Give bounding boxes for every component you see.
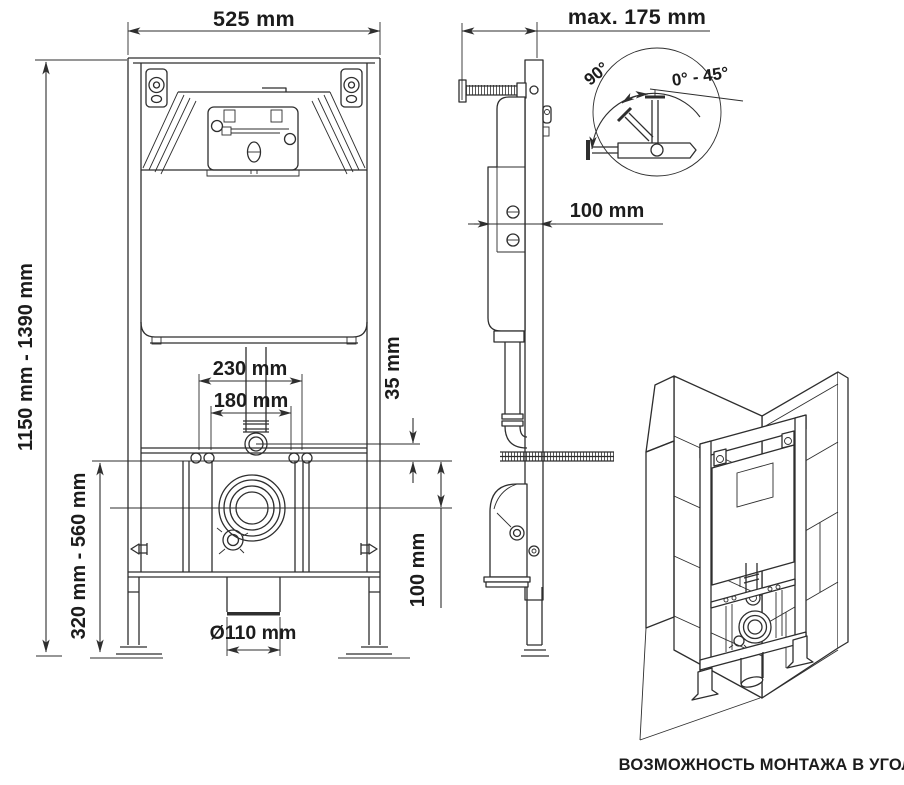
angle-90-label: 90° [581,58,613,89]
dim-drain-offset-label: 100 mm [407,533,429,608]
hanger-bracket-left [146,69,167,107]
dim-rail-320-560: 320 mm - 560 mm [68,463,100,652]
flush-pipe-side [500,342,614,461]
fixing-rail [92,448,452,463]
frame-outline [128,58,380,577]
dim-flush-offset-label: 35 mm [382,336,404,399]
dim-fixing-outer-label: 230 mm [213,358,288,380]
cistern-profile [488,97,525,342]
hose-clamp [217,528,248,554]
tiled-wall-section [646,441,674,628]
angle-range-label: 0° - 45° [671,63,730,90]
hanger-bracket-right [341,69,362,107]
cistern [141,88,367,344]
dim-width-label: 525 mm [213,7,295,31]
dim-width-525: 525 mm [128,7,380,55]
dim-depth-label: 100 mm [570,200,645,222]
corner-mounting-caption: ВОЗМОЖНОСТЬ МОНТАЖА В УГОЛ [619,756,904,774]
technical-drawing-page: 525 mm 1150 mm - 1390 mm 320 mm - 560 mm… [0,0,904,785]
installation-frame-drawing: 525 mm 1150 mm - 1390 mm 320 mm - 560 mm… [0,0,904,785]
dim-max-wall-label: max. 175 mm [568,5,706,29]
dim-fixing-inner-label: 180 mm [214,390,289,412]
dim-height-label: 1150 mm - 1390 mm [15,263,37,451]
isometric-view: ВОЗМОЖНОСТЬ МОНТАЖА В УГОЛ [619,372,904,774]
dim-outlet-label: Ø110 mm [210,622,297,644]
bracket-angle-detail: 90° 0° - 45° [581,48,743,176]
dim-fixing-180: 180 mm [211,390,291,450]
dim-outlet-110: Ø110 mm [210,617,297,656]
dim-rail-label: 320 mm - 560 mm [68,473,90,640]
dim-drain-100: 100 mm [407,462,441,608]
front-view: 525 mm 1150 mm - 1390 mm 320 mm - 560 mm… [15,7,452,658]
